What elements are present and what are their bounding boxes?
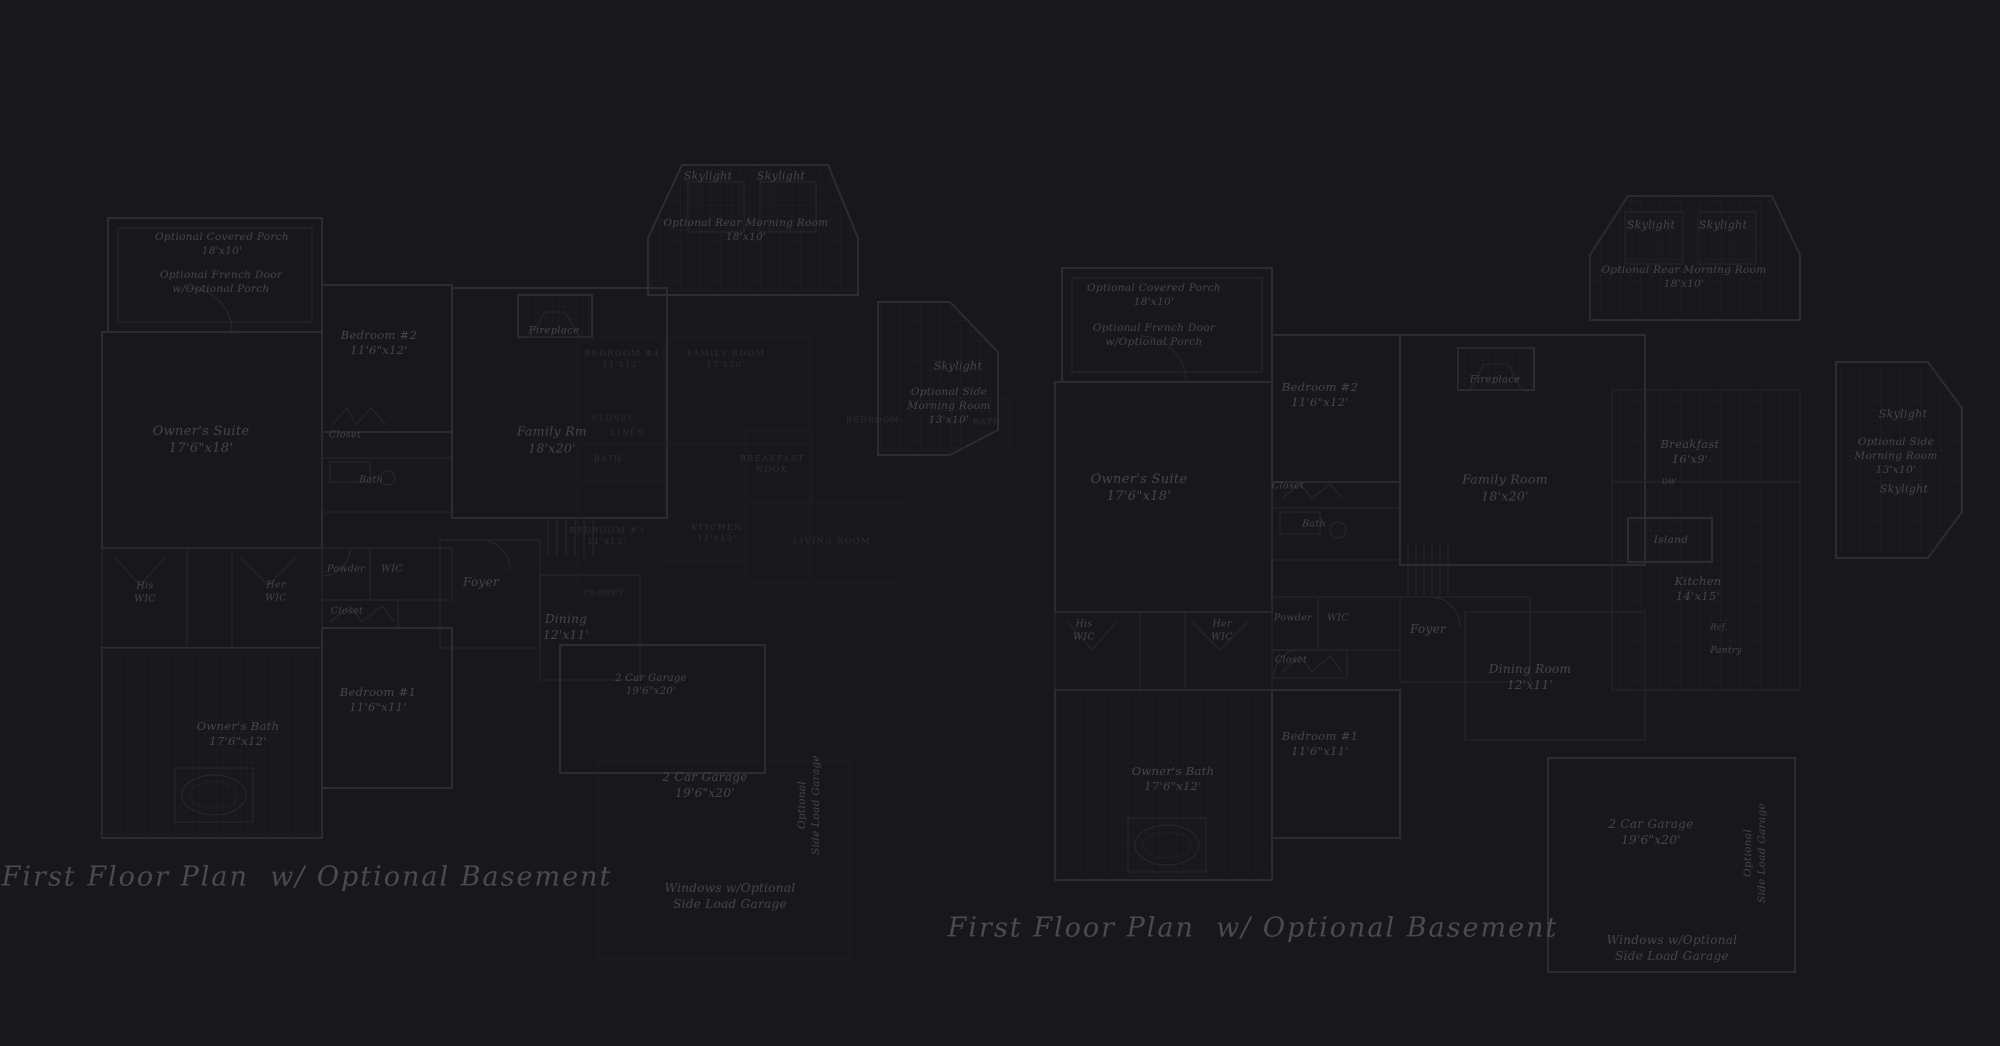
bedroom-2-label: Bedroom #211'6"x12' <box>341 328 417 358</box>
dw-label: DW <box>1662 477 1676 487</box>
garage-label: 2 Car Garage19'6"x20' <box>1608 817 1693 849</box>
side-morning-room-label: Optional SideMorning Room13'x10' <box>1854 436 1937 478</box>
fireplace-label: Fireplace <box>1470 373 1521 386</box>
windows-label: Windows w/OptionalSide Load Garage <box>1607 933 1738 965</box>
skylight-side-top-label: Skylight <box>1879 408 1927 423</box>
overlay-side-load-garage-label: OptionalSide Load Garage <box>796 755 824 855</box>
side-load-garage-label: OptionalSide Load Garage <box>1742 803 1770 903</box>
overlay-bedroom-label: BEDROOM <box>846 416 900 427</box>
skylight-side-bottom-label: Skylight <box>1880 483 1928 498</box>
owners-suite-label: Owner's Suite17'6"x18' <box>1091 471 1188 505</box>
overlay-kitchen-label: KITCHEN11'x13' <box>691 523 742 545</box>
closet-bedroom2-label: Closet <box>1272 481 1304 494</box>
optional-french-door-label: Optional French Doorw/Optional Porch <box>160 269 282 297</box>
kitchen-label: Kitchen14'x15' <box>1674 574 1721 604</box>
skylight-left-label: Skylight <box>684 170 732 185</box>
ref-label: Ref. <box>1710 623 1727 634</box>
closet-hall-label: Closet <box>1275 655 1307 668</box>
overlay-bath-2-label: BATH <box>973 418 1001 429</box>
closet-hall-label: Closet <box>331 606 363 619</box>
powder-label: Powder <box>327 564 365 577</box>
left-plan-title: First Floor Plan w/ Optional Basement <box>2 862 613 893</box>
overlay-bath-1-label: BATH <box>594 455 622 466</box>
bath-bedroom2-label: Bath <box>359 475 383 488</box>
optional-covered-porch-label: Optional Covered Porch18'x10' <box>155 231 289 259</box>
her-wic-label: HerWIC <box>265 579 287 604</box>
right-plan-walls <box>1055 196 1962 972</box>
skylight-right-label: Skylight <box>757 170 805 185</box>
rear-morning-room-label: Optional Rear Morning Room18'x10' <box>663 217 828 245</box>
fireplace-label: Fireplace <box>529 324 580 337</box>
pantry-label: Pantry <box>1710 646 1742 658</box>
bedroom-2-label: Bedroom #211'6"x12' <box>1282 380 1358 410</box>
skylight-right-label: Skylight <box>1699 219 1747 234</box>
family-room-label: Family Rm18'x20' <box>517 424 587 457</box>
dining-label: Dining12'x11' <box>543 612 589 644</box>
her-wic-label: HerWIC <box>1211 618 1233 643</box>
wic-label: WIC <box>381 564 403 577</box>
his-wic-label: HisWIC <box>134 580 156 605</box>
family-room-label: Family Room18'x20' <box>1462 472 1548 505</box>
his-wic-label: HisWIC <box>1073 618 1095 643</box>
owners-suite-label: Owner's Suite17'6"x18' <box>153 423 250 457</box>
bedroom-1-label: Bedroom #111'6"x11' <box>340 685 416 715</box>
owners-bath-label: Owner's Bath17'6"x12' <box>1132 764 1215 794</box>
overlay-closet-2-label: CLOSET <box>583 589 625 600</box>
foyer-label: Foyer <box>463 575 499 591</box>
overlay-garage-label: 2 Car Garage19'6"x20' <box>662 770 747 802</box>
overlay-breakfast-nook-label: BREAKFASTNOOK <box>740 454 805 476</box>
dining-room-label: Dining Room12'x11' <box>1489 662 1571 694</box>
island-label: Island <box>1654 534 1688 548</box>
overlay-living-room-label: LIVING ROOM <box>793 536 871 547</box>
bedroom-1-label: Bedroom #111'6"x11' <box>1282 729 1358 759</box>
garage-label: 2 Car Garage19'6"x20' <box>615 672 687 698</box>
bath-bedroom2-label: Bath <box>1302 519 1326 532</box>
breakfast-label: Breakfast16'x9' <box>1661 437 1720 467</box>
owners-bath-label: Owner's Bath17'6"x12' <box>197 719 280 749</box>
blueprint-page: Optional Covered Porch18'x10'Optional Fr… <box>0 0 2000 1046</box>
rear-morning-room-label: Optional Rear Morning Room18'x10' <box>1601 264 1766 292</box>
skylight-side-label: Skylight <box>934 360 982 375</box>
wic-label: WIC <box>1327 613 1349 626</box>
closet-bedroom2-label: Closet <box>329 430 361 443</box>
optional-covered-porch-label: Optional Covered Porch18'x10' <box>1087 282 1221 310</box>
optional-french-door-label: Optional French Doorw/Optional Porch <box>1093 322 1215 350</box>
overlay-bedroom4-label: BEDROOM #411'x12' <box>584 349 660 371</box>
overlay-windows-label: Windows w/OptionalSide Load Garage <box>665 881 796 913</box>
overlay-linen-label: LINEN <box>611 429 645 440</box>
overlay-family-room-label: FAMILY ROOM17'x20' <box>686 349 765 371</box>
skylight-left-label: Skylight <box>1627 219 1675 234</box>
powder-label: Powder <box>1274 613 1312 626</box>
foyer-label: Foyer <box>1410 622 1446 638</box>
overlay-closet-1-label: CLOSET <box>592 414 634 425</box>
right-plan-title: First Floor Plan w/ Optional Basement <box>948 913 1559 944</box>
overlay-bedroom3-label: BEDROOM #311'x13' <box>569 526 645 548</box>
